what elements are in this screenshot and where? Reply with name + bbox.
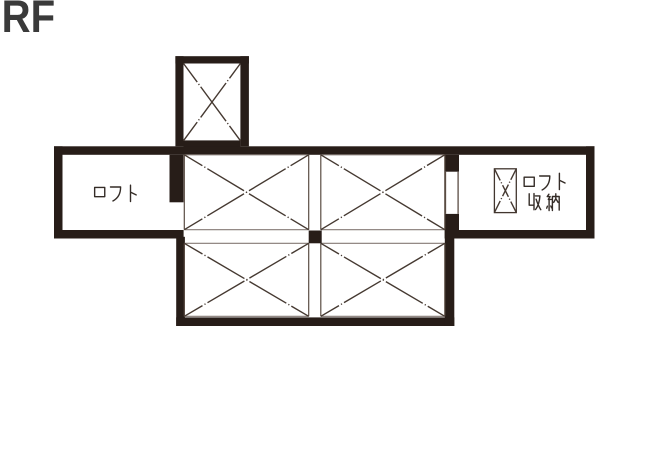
svg-text:RF: RF	[2, 0, 56, 42]
